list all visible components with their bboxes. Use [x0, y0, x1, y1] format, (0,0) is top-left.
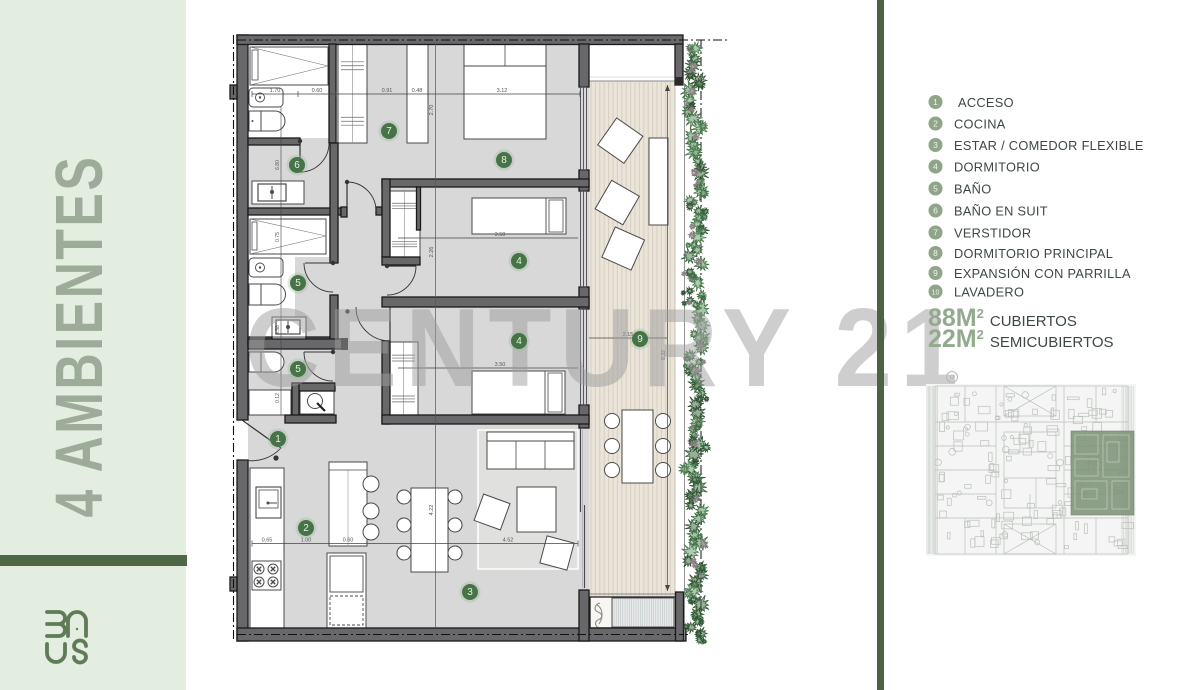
svg-text:7: 7	[386, 126, 392, 137]
svg-text:2: 2	[933, 119, 938, 129]
svg-text:ESTAR / COMEDOR FLEXIBLE: ESTAR / COMEDOR FLEXIBLE	[954, 138, 1144, 153]
svg-text:8: 8	[501, 155, 507, 166]
svg-text:4: 4	[933, 162, 938, 172]
svg-text:4: 4	[516, 256, 522, 267]
svg-text:DORMITORIO PRINCIPAL: DORMITORIO PRINCIPAL	[954, 246, 1113, 261]
svg-text:2: 2	[303, 523, 309, 534]
svg-text:4: 4	[516, 336, 522, 347]
svg-text:3: 3	[933, 140, 938, 150]
svg-text:9: 9	[637, 334, 643, 345]
svg-text:ACCESO: ACCESO	[958, 95, 1014, 110]
svg-text:7: 7	[933, 228, 938, 238]
svg-text:R: R	[949, 375, 954, 382]
svg-text:BAÑO EN SUIT: BAÑO EN SUIT	[954, 204, 1048, 219]
svg-text:LAVADERO: LAVADERO	[954, 285, 1024, 300]
svg-text:6: 6	[294, 160, 300, 171]
svg-text:EXPANSIÓN CON PARRILLA: EXPANSIÓN CON PARRILLA	[954, 266, 1131, 281]
svg-text:COCINA: COCINA	[954, 117, 1006, 132]
svg-text:VERSTIDOR: VERSTIDOR	[954, 226, 1031, 241]
svg-text:6: 6	[933, 206, 938, 216]
svg-text:3: 3	[467, 587, 473, 598]
svg-text:1: 1	[933, 97, 938, 107]
svg-text:8: 8	[933, 248, 938, 258]
svg-text:DORMITORIO: DORMITORIO	[954, 160, 1040, 175]
svg-text:9: 9	[933, 268, 938, 278]
svg-text:10: 10	[932, 290, 940, 297]
svg-text:5: 5	[295, 278, 301, 289]
svg-text:BAÑO: BAÑO	[954, 182, 991, 197]
svg-text:5: 5	[295, 364, 301, 375]
svg-text:1: 1	[275, 434, 281, 445]
svg-text:5: 5	[933, 184, 938, 194]
